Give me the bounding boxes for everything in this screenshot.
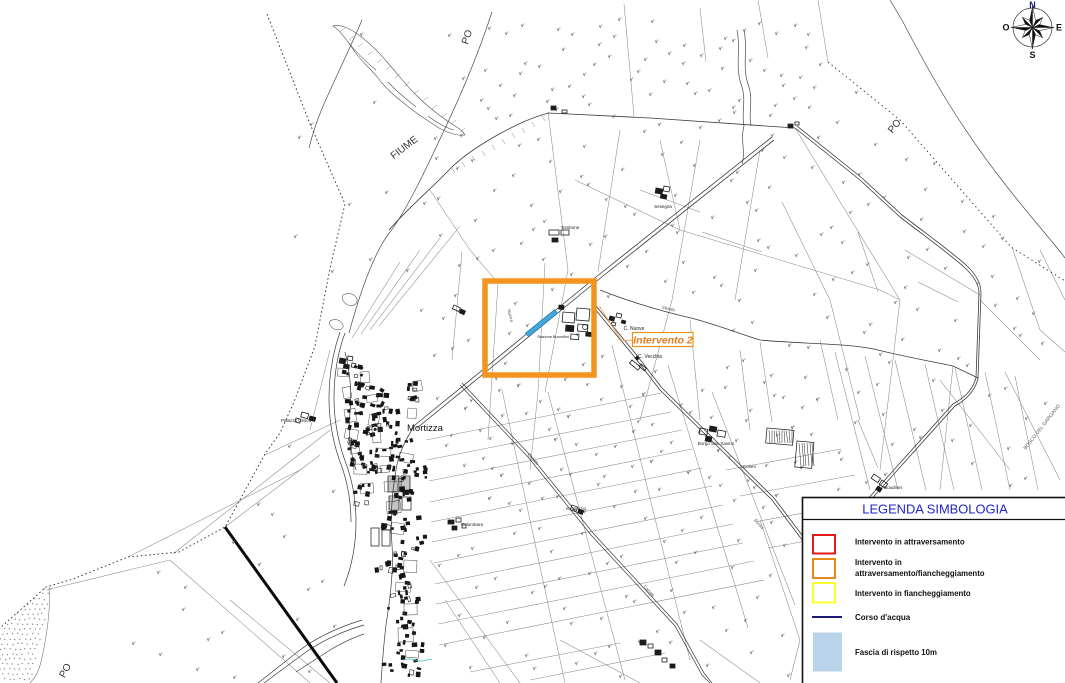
svg-text:C. Nuove: C. Nuove: [624, 326, 645, 332]
svg-text:PO: PO: [58, 662, 75, 680]
svg-text:LEGENDA SIMBOLOGIA: LEGENDA SIMBOLOGIA: [862, 502, 1008, 517]
svg-text:S: S: [1029, 50, 1035, 60]
svg-text:E: E: [1056, 23, 1062, 33]
svg-text:Nuova: Nuova: [506, 309, 514, 323]
svg-text:FIUME: FIUME: [389, 134, 421, 162]
svg-text:PO: PO: [886, 117, 904, 135]
svg-text:Intervento in attraversamento: Intervento in attraversamento: [855, 538, 965, 547]
svg-text:Intervento 2: Intervento 2: [633, 334, 693, 346]
svg-text:N: N: [1029, 0, 1036, 10]
svg-text:Corso d'acqua: Corso d'acqua: [855, 613, 911, 622]
svg-text:Palazzo Cesca: Palazzo Cesca: [281, 418, 312, 423]
svg-text:attraversamento/fiancheggiamen: attraversamento/fiancheggiamento: [855, 569, 985, 578]
svg-text:I Coloni: I Coloni: [740, 464, 755, 469]
svg-text:Intervento in fiancheggiamento: Intervento in fiancheggiamento: [855, 589, 971, 598]
svg-text:Fascia di rispetto 10m: Fascia di rispetto 10m: [855, 648, 937, 657]
svg-text:C. Vecchia: C. Vecchia: [638, 354, 662, 360]
svg-text:Intervento in: Intervento in: [855, 558, 902, 567]
svg-text:Mortizza: Mortizza: [407, 423, 444, 434]
svg-text:Canale: Canale: [642, 584, 656, 598]
svg-text:BOSCO DEL GARGANO: BOSCO DEL GARGANO: [1023, 403, 1062, 451]
svg-text:Stazione Buccellini: Stazione Buccellini: [537, 335, 569, 339]
svg-text:Borgo San Savino: Borgo San Savino: [698, 441, 735, 446]
svg-text:Boudinet: Boudinet: [884, 485, 903, 490]
svg-text:O: O: [1002, 23, 1009, 33]
svg-text:Tombone: Tombone: [561, 225, 580, 230]
svg-text:Fossa: Fossa: [753, 518, 765, 531]
svg-text:PO: PO: [460, 28, 475, 45]
svg-text:S. Ignazio: S. Ignazio: [566, 506, 587, 511]
svg-text:Sesegna: Sesegna: [654, 204, 672, 209]
svg-text:Colombara: Colombara: [461, 522, 484, 527]
